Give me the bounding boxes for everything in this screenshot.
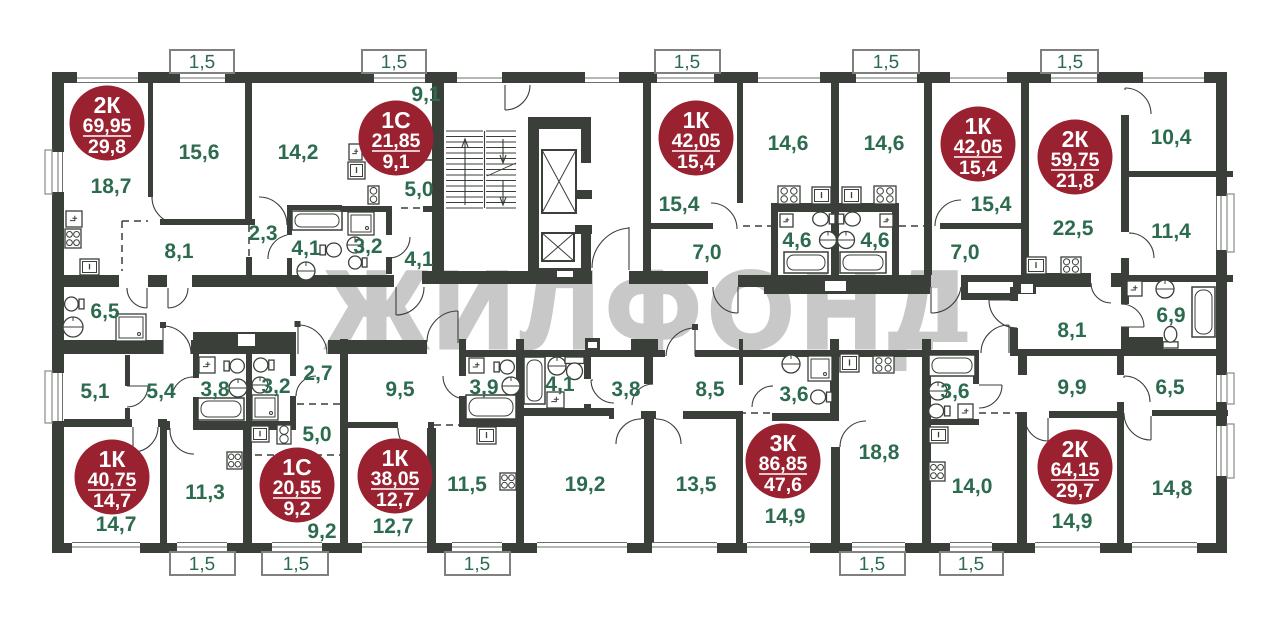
svg-text:6,9: 6,9 (1156, 304, 1185, 327)
svg-text:42,05: 42,05 (672, 130, 721, 152)
svg-text:1,5: 1,5 (283, 554, 309, 575)
svg-text:15,4: 15,4 (659, 193, 700, 216)
svg-text:20,55: 20,55 (273, 477, 322, 499)
svg-text:15,4: 15,4 (677, 151, 715, 173)
svg-text:3,2: 3,2 (261, 375, 290, 398)
svg-text:1,5: 1,5 (873, 52, 899, 73)
svg-text:5,0: 5,0 (302, 423, 331, 446)
svg-text:59,75: 59,75 (1051, 149, 1100, 171)
svg-text:4,6: 4,6 (782, 229, 811, 252)
svg-text:18,7: 18,7 (91, 175, 132, 198)
svg-text:1,5: 1,5 (1057, 52, 1083, 73)
svg-text:9,2: 9,2 (307, 520, 336, 543)
svg-text:9,5: 9,5 (385, 378, 415, 401)
svg-text:3,8: 3,8 (611, 378, 641, 401)
svg-text:64,15: 64,15 (1051, 459, 1100, 481)
svg-text:1,5: 1,5 (189, 554, 215, 575)
svg-text:29,7: 29,7 (1056, 480, 1094, 502)
svg-text:6,5: 6,5 (90, 300, 120, 323)
svg-text:18,8: 18,8 (859, 441, 900, 464)
svg-text:4,1: 4,1 (291, 237, 321, 260)
svg-text:22,5: 22,5 (1053, 217, 1094, 240)
svg-text:14,7: 14,7 (93, 490, 131, 512)
svg-text:9,9: 9,9 (1057, 376, 1086, 399)
svg-text:15,6: 15,6 (179, 141, 220, 164)
svg-text:3,8: 3,8 (200, 378, 230, 401)
svg-text:13,5: 13,5 (676, 473, 717, 496)
svg-text:1,5: 1,5 (674, 52, 700, 73)
svg-text:15,4: 15,4 (959, 157, 997, 179)
svg-text:3,2: 3,2 (353, 235, 382, 258)
svg-text:19,2: 19,2 (565, 473, 606, 496)
svg-text:8,1: 8,1 (164, 240, 194, 263)
svg-text:11,4: 11,4 (1151, 220, 1191, 243)
svg-text:11,5: 11,5 (447, 473, 487, 496)
svg-text:5,4: 5,4 (146, 380, 176, 403)
svg-text:69,95: 69,95 (83, 115, 132, 137)
svg-text:8,1: 8,1 (1057, 319, 1087, 342)
svg-text:12,7: 12,7 (376, 489, 414, 511)
svg-text:5,0: 5,0 (404, 178, 433, 201)
svg-text:86,85: 86,85 (759, 453, 808, 475)
svg-text:14,0: 14,0 (952, 475, 993, 498)
svg-text:9,2: 9,2 (283, 498, 310, 520)
svg-text:14,2: 14,2 (278, 141, 319, 164)
svg-text:12,7: 12,7 (373, 515, 414, 538)
svg-text:14,9: 14,9 (765, 505, 806, 528)
svg-text:14,9: 14,9 (1052, 510, 1093, 533)
svg-text:4,1: 4,1 (404, 248, 434, 271)
svg-text:8,5: 8,5 (695, 378, 725, 401)
svg-text:40,75: 40,75 (88, 469, 137, 491)
svg-text:14,6: 14,6 (864, 132, 905, 155)
svg-text:38,05: 38,05 (371, 468, 420, 490)
svg-text:1,5: 1,5 (464, 554, 490, 575)
svg-text:21,85: 21,85 (372, 130, 421, 152)
svg-text:1,5: 1,5 (859, 554, 885, 575)
svg-text:4,1: 4,1 (545, 373, 575, 396)
svg-text:5,1: 5,1 (80, 380, 110, 403)
svg-text:3,6: 3,6 (940, 380, 969, 403)
svg-text:3,6: 3,6 (779, 383, 808, 406)
svg-text:2,3: 2,3 (248, 222, 277, 245)
svg-text:11,3: 11,3 (185, 481, 225, 504)
svg-text:3,9: 3,9 (469, 376, 498, 399)
svg-text:42,05: 42,05 (954, 136, 1003, 158)
svg-text:4,6: 4,6 (860, 229, 889, 252)
svg-text:10,4: 10,4 (1151, 126, 1192, 149)
svg-text:47,6: 47,6 (764, 474, 802, 496)
svg-text:14,7: 14,7 (96, 513, 137, 536)
svg-text:9,1: 9,1 (411, 83, 441, 106)
svg-text:9,1: 9,1 (382, 151, 409, 173)
svg-text:1,5: 1,5 (381, 52, 407, 73)
svg-text:7,0: 7,0 (692, 241, 721, 264)
svg-text:29,8: 29,8 (88, 136, 126, 158)
svg-text:7,0: 7,0 (950, 241, 979, 264)
svg-text:14,8: 14,8 (1152, 477, 1193, 500)
svg-text:21,8: 21,8 (1056, 170, 1094, 192)
svg-text:6,5: 6,5 (1155, 376, 1185, 399)
svg-text:2,7: 2,7 (303, 362, 332, 385)
svg-text:1,5: 1,5 (958, 554, 984, 575)
svg-text:1,5: 1,5 (189, 52, 215, 73)
svg-text:14,6: 14,6 (768, 132, 809, 155)
svg-text:15,4: 15,4 (971, 193, 1012, 216)
